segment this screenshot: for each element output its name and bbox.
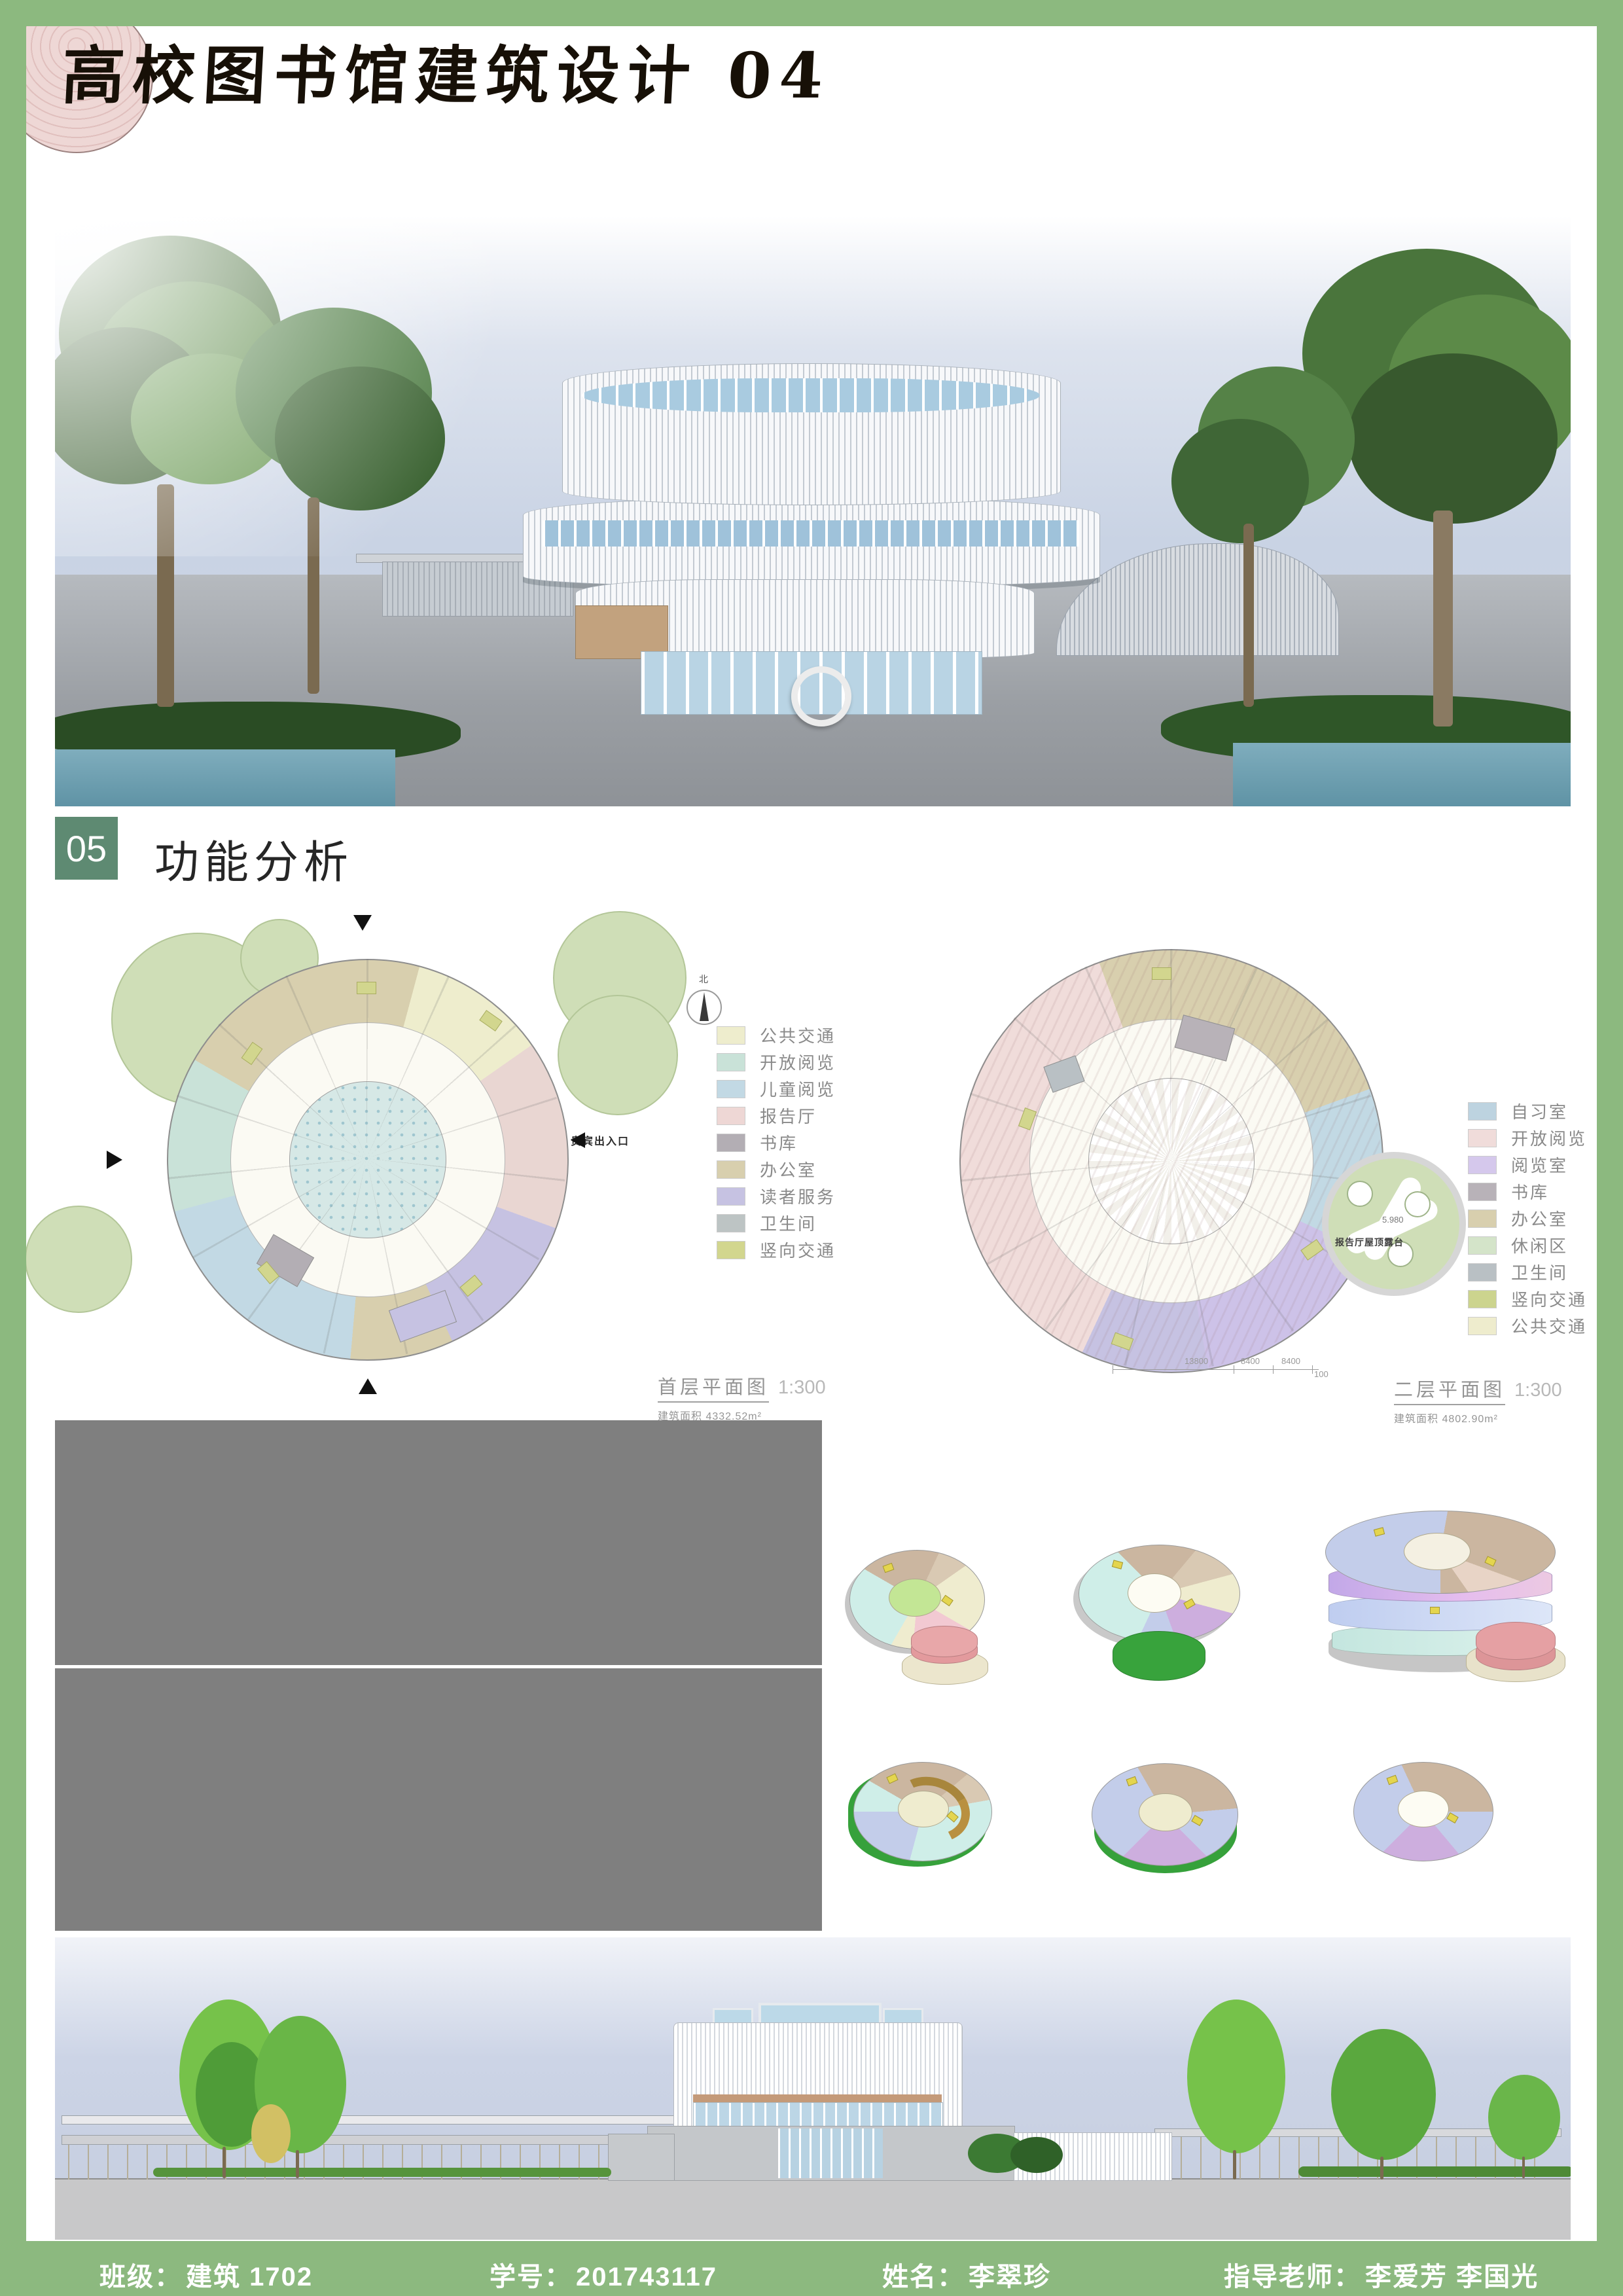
legend-label: 自习室: [1511, 1099, 1568, 1123]
sky-fade: [55, 216, 592, 556]
dimension-value: 13800: [1185, 1356, 1208, 1366]
level-label: 5.980: [1382, 1215, 1404, 1225]
legend-swatch: [717, 1134, 745, 1152]
water-left: [55, 749, 395, 806]
floor2-caption: 二层平面图1:300 建筑面积 4802.90m²: [1394, 1374, 1562, 1426]
legend-swatch: [1468, 1263, 1497, 1282]
legend-row: 书库: [717, 1134, 836, 1151]
legend-row: 公共交通: [1468, 1317, 1587, 1335]
legend-row: 公共交通: [717, 1026, 836, 1044]
core-tick: [1430, 1607, 1440, 1614]
section-number-badge: 05: [55, 817, 118, 880]
legend-row: 自习室: [1468, 1102, 1587, 1120]
dimension-tick: [1273, 1365, 1274, 1374]
page-title: 高校图书馆建筑设计 04: [60, 25, 833, 116]
tree-trunk: [1243, 524, 1254, 707]
floor1-legend: 公共交通 开放阅览 儿童阅览 报告厅 书库 办公室 读者服务 卫生间 竖向交通: [717, 1026, 836, 1268]
section-number: 05: [66, 827, 107, 870]
frame-left: [0, 0, 26, 2296]
axon-atrium-hole: [1398, 1791, 1449, 1827]
legend-swatch: [1468, 1210, 1497, 1228]
legend-swatch: [717, 1241, 745, 1259]
tree-trunk: [1233, 2150, 1236, 2179]
building-clerestory: [582, 378, 1040, 412]
legend-label: 休闲区: [1511, 1233, 1568, 1257]
plan-tree-circle: [25, 1206, 132, 1313]
legend-label: 竖向交通: [760, 1238, 836, 1262]
dimension-tick: [1113, 1365, 1113, 1374]
axon-atrium-hole: [1404, 1533, 1471, 1570]
tree-trunk: [223, 2147, 226, 2178]
legend-swatch: [1468, 1236, 1497, 1255]
entrance-arrow-icon: [359, 1378, 377, 1394]
legend-row: 儿童阅览: [717, 1080, 836, 1098]
stair-core: [357, 982, 376, 994]
legend-label: 阅览室: [1511, 1153, 1568, 1177]
elevation-render: [55, 1937, 1571, 2240]
legend-row: 开放阅览: [717, 1053, 836, 1071]
footer-name: 姓名：李翠珍: [882, 2255, 1051, 2293]
legend-label: 书库: [760, 1130, 798, 1155]
axon-green-roof: [1113, 1631, 1205, 1681]
caption-scale: 1:300: [778, 1377, 826, 1398]
elevation-wood-band: [693, 2094, 942, 2102]
legend-label: 书库: [1511, 1179, 1549, 1204]
dimension-line: 13800 8400 8400 100: [1113, 1360, 1319, 1380]
legend-label: 卫生间: [760, 1211, 817, 1235]
entrance-arrow-icon: [107, 1151, 122, 1169]
terrace-label: 报告厅屋顶露台: [1335, 1236, 1404, 1249]
legend-label: 开放阅览: [1511, 1126, 1587, 1150]
elevation-ground: [55, 2178, 1571, 2240]
legend-row: 书库: [1468, 1183, 1587, 1200]
tree-blob: [1187, 2000, 1285, 2153]
legend-row: 开放阅览: [1468, 1129, 1587, 1147]
tree-blob: [1331, 2029, 1436, 2160]
bush-blob: [1010, 2137, 1063, 2173]
legend-swatch: [717, 1214, 745, 1232]
footer-advisor-label: 指导老师：: [1224, 2263, 1361, 2291]
legend-swatch: [1468, 1290, 1497, 1308]
footer-class-value: 建筑 1702: [186, 2263, 313, 2291]
axon-atrium-hole: [898, 1791, 949, 1827]
legend-swatch: [1468, 1317, 1497, 1335]
legend-row: 办公室: [1468, 1210, 1587, 1227]
canopy-slab: [62, 2115, 691, 2125]
entrance-arrow-icon: [353, 915, 372, 931]
dimension-value: 8400: [1281, 1356, 1300, 1366]
caption-text: 二层平面图: [1394, 1380, 1505, 1405]
axon-hall-cylinder-top: [911, 1626, 978, 1657]
legend-label: 报告厅: [760, 1103, 817, 1128]
caption-text: 首层平面图: [658, 1377, 769, 1403]
legend-row: 阅览室: [1468, 1156, 1587, 1174]
tree-blob: [1171, 419, 1309, 543]
legend-row: 竖向交通: [717, 1241, 836, 1259]
dimension-tick: [1234, 1365, 1234, 1374]
terrace-table: [1404, 1191, 1431, 1217]
hedge: [153, 2168, 611, 2177]
caption-area: 建筑面积 4802.90m²: [1394, 1410, 1562, 1426]
water-right: [1233, 743, 1571, 806]
footer-class: 班级：建筑 1702: [99, 2255, 313, 2293]
legend-label: 办公室: [760, 1157, 817, 1181]
legend-swatch: [717, 1160, 745, 1179]
shrub-blob: [251, 2104, 291, 2163]
legend-label: 儿童阅览: [760, 1077, 836, 1101]
compass-label: 北: [699, 973, 708, 986]
tree-trunk: [1380, 2157, 1383, 2179]
terrace-table: [1347, 1181, 1373, 1207]
frame-top: [0, 0, 1623, 26]
compass-needle: [700, 992, 709, 1021]
entrance-arrow-icon: [571, 1132, 585, 1148]
frame-right: [1597, 0, 1623, 2296]
building-glass-band: [543, 520, 1079, 547]
legend-swatch: [717, 1080, 745, 1098]
legend-row: 竖向交通: [1468, 1290, 1587, 1308]
legend-row: 报告厅: [717, 1107, 836, 1124]
dimension-rule: [1113, 1369, 1319, 1370]
legend-swatch: [717, 1026, 745, 1045]
footer-advisor-value: 李爱芳 李国光: [1365, 2263, 1539, 2291]
tree-trunk: [1522, 2157, 1525, 2178]
dimension-tick: [1312, 1365, 1313, 1374]
missing-image-placeholder-1: [55, 1420, 822, 1665]
floor2-legend: 自习室 开放阅览 阅览室 书库 办公室 休闲区 卫生间 竖向交通 公共交通: [1468, 1102, 1587, 1344]
legend-swatch: [1468, 1183, 1497, 1201]
plan-partitions: [959, 949, 1381, 1371]
missing-image-placeholder-2: [55, 1668, 822, 1931]
footer-id-value: 201743117: [576, 2263, 717, 2291]
floor1-caption: 首层平面图1:300 建筑面积 4332.52m²: [658, 1372, 826, 1423]
legend-row: 读者服务: [717, 1187, 836, 1205]
plan-tree-circle: [558, 995, 678, 1115]
footer-name-label: 姓名：: [882, 2263, 965, 2291]
legend-label: 竖向交通: [1511, 1287, 1587, 1311]
legend-label: 公共交通: [760, 1023, 836, 1047]
footer-class-label: 班级：: [99, 2263, 182, 2291]
presentation-board: 高校图书馆建筑设计 04: [0, 0, 1623, 2296]
axon-atrium-hole: [1128, 1573, 1181, 1613]
legend-label: 卫生间: [1511, 1260, 1568, 1284]
footer-id-label: 学号：: [490, 2263, 572, 2291]
footer-advisors: 指导老师：李爱芳 李国光: [1224, 2255, 1539, 2293]
section-title: 功能分析: [154, 826, 353, 891]
legend-swatch: [717, 1053, 745, 1071]
legend-row: 办公室: [717, 1160, 836, 1178]
stair-core: [1152, 967, 1171, 980]
axon-atrium-hole: [889, 1579, 941, 1617]
legend-label: 公共交通: [1511, 1314, 1587, 1338]
hedge: [1298, 2166, 1571, 2177]
tree-trunk: [1433, 511, 1453, 726]
legend-label: 读者服务: [760, 1184, 836, 1208]
axon-atrium-hole: [1139, 1793, 1192, 1831]
legend-swatch: [1468, 1102, 1497, 1121]
plan-partitions: [167, 959, 566, 1358]
legend-row: 卫生间: [1468, 1263, 1587, 1281]
tree-blob: [1488, 2075, 1560, 2160]
footer-student-id: 学号：201743117: [490, 2255, 717, 2293]
tree-trunk: [296, 2150, 299, 2178]
legend-row: 卫生间: [717, 1214, 836, 1232]
north-compass: [687, 990, 722, 1025]
axon-hall-cylinder-top: [1476, 1622, 1556, 1660]
legend-swatch: [717, 1187, 745, 1206]
legend-row: 休闲区: [1468, 1236, 1587, 1254]
tree-blob: [1348, 353, 1558, 524]
legend-label: 办公室: [1511, 1206, 1568, 1230]
legend-swatch: [1468, 1129, 1497, 1147]
vip-entrance-annotation: 贵宾出入口: [571, 1132, 630, 1148]
canopy-slab: [62, 2135, 694, 2145]
caption-scale: 1:300: [1514, 1380, 1562, 1401]
legend-label: 开放阅览: [760, 1050, 836, 1074]
dimension-value: 100: [1314, 1369, 1329, 1379]
elevation-entrance-glass: [778, 2128, 883, 2178]
legend-swatch: [1468, 1156, 1497, 1174]
hero-render: [55, 216, 1571, 806]
elevation-glass-band: [693, 2102, 943, 2127]
elevation-left-block: [608, 2134, 675, 2181]
dimension-value: 8400: [1241, 1356, 1260, 1366]
footer-name-value: 李翠珍: [969, 2263, 1051, 2291]
legend-swatch: [717, 1107, 745, 1125]
